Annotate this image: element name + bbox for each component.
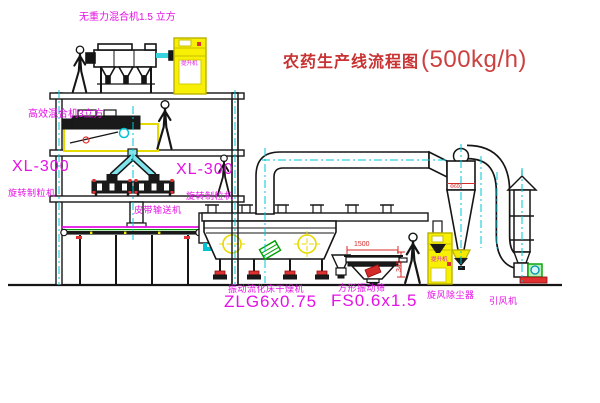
dim-sieve-height: 345 <box>396 260 403 272</box>
label-granulator-right-model: XL-300 <box>176 162 234 178</box>
label-sieve-model: FS0.6x1.5 <box>331 292 418 309</box>
label-granulator-left-model: XL-300 <box>12 159 70 175</box>
label-hoist-top: 提升机 <box>181 62 198 68</box>
rotary-granulator-right <box>134 174 174 197</box>
induced-draft-fan <box>514 263 547 283</box>
label-high-eff-mixer: 高效混合机3立方 <box>28 110 104 120</box>
label-cyclone: 旋风除尘器 <box>427 291 475 300</box>
label-gravity-mixer: 无重力混合机1.5 立方 <box>79 13 176 23</box>
bucket-elevator-bottom <box>428 221 452 284</box>
dim-cyclone: Φ600 <box>450 185 462 190</box>
gravity-free-mixer <box>86 44 173 93</box>
person-top-floor <box>73 46 86 92</box>
fluid-bed-dryer <box>204 221 350 279</box>
label-belt-conveyor: 皮带输送机 <box>134 206 182 215</box>
rotary-granulator-left <box>92 174 132 197</box>
label-hoist-bottom: 提升机 <box>431 258 448 264</box>
dryer-feet <box>214 259 329 279</box>
belt-conveyor <box>61 227 202 284</box>
label-dryer-model: ZLG6x0.75 <box>224 293 317 310</box>
title-text: 农药生产线流程图 <box>283 48 419 72</box>
person-second-floor <box>157 101 171 149</box>
label-granulator-left-name: 旋转制粒机 <box>8 189 56 198</box>
label-fan: 引风机 <box>489 297 518 306</box>
title-capacity: (500kg/h) <box>421 46 527 74</box>
drawing-title: 农药生产线流程图 (500kg/h) <box>283 46 527 74</box>
cad-process-flow-screenshot: 农药生产线流程图 (500kg/h) 无重力混合机1.5 立方 高效混合机3立方… <box>0 0 600 403</box>
label-granulator-right-name: 旋转制粒机 <box>186 192 234 201</box>
dim-sieve-length: 1500 <box>354 241 370 248</box>
